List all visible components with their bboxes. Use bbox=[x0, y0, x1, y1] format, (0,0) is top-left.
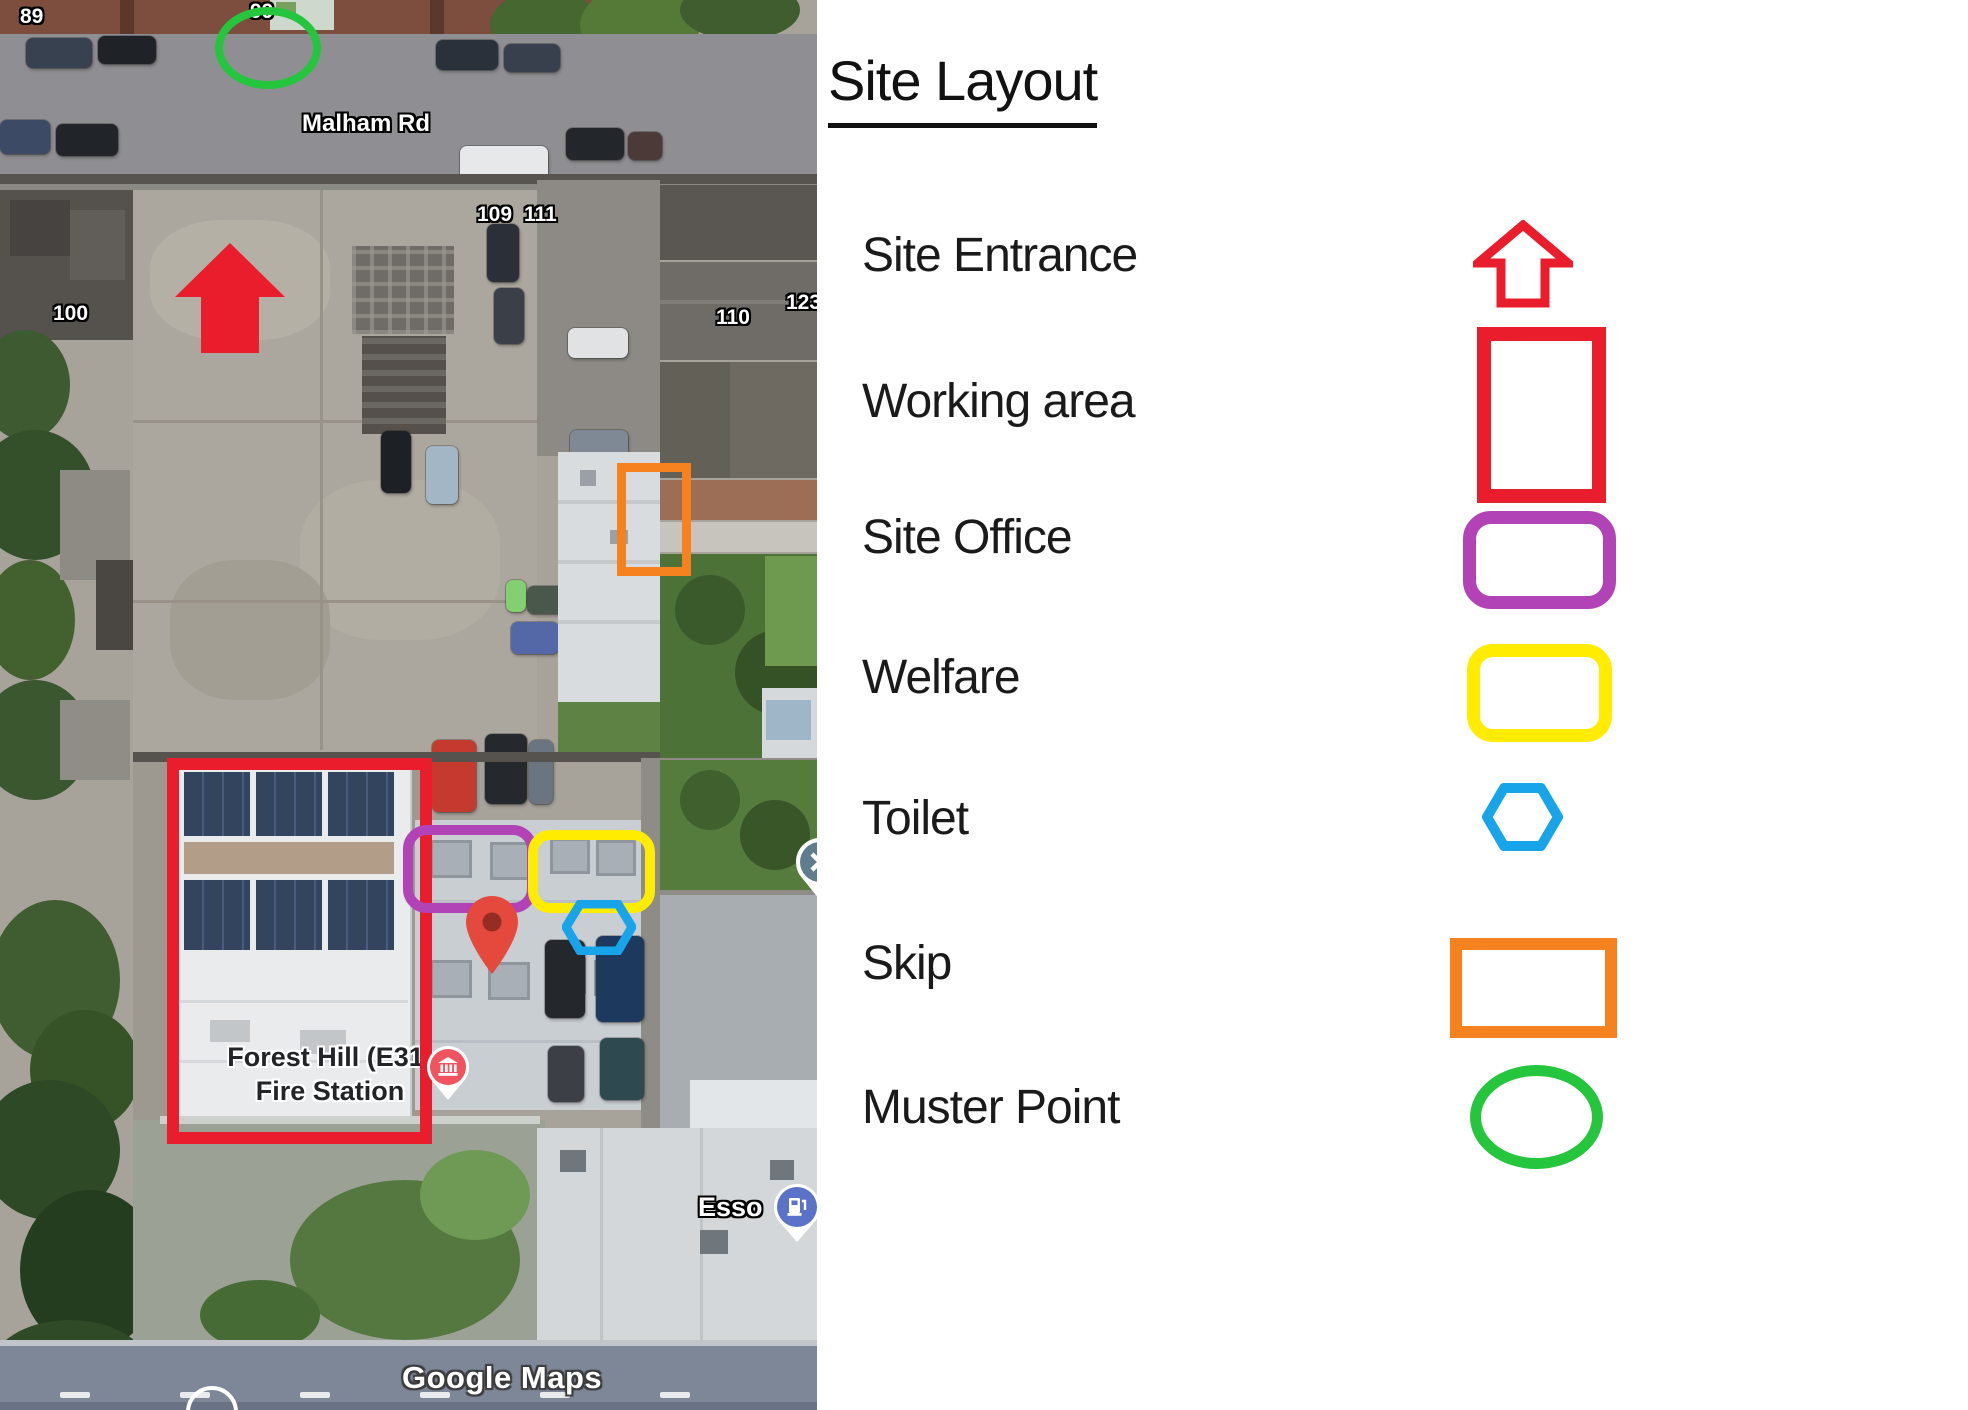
roof-vent bbox=[770, 1160, 794, 1180]
parked-car bbox=[381, 431, 411, 493]
parked-car bbox=[56, 124, 118, 156]
satellite-map: 89 99 Malham Rd 109 111 100 110 123 Fore… bbox=[0, 0, 817, 1410]
parked-car bbox=[98, 36, 156, 64]
house-number-110: 110 bbox=[716, 306, 750, 330]
parked-car bbox=[511, 622, 559, 654]
map-pin-body bbox=[466, 896, 518, 974]
map-pin-hole bbox=[483, 913, 502, 932]
hexagon-shape bbox=[566, 904, 632, 951]
hoist-structure bbox=[362, 336, 446, 434]
legend-icon-site-office-rounded-rect bbox=[1463, 511, 1616, 609]
civic-column bbox=[441, 1065, 444, 1073]
fuel-poi-icon bbox=[771, 1182, 817, 1244]
arrow-up-shape bbox=[175, 243, 285, 353]
fuel-pump-base bbox=[788, 1213, 802, 1216]
civic-column bbox=[445, 1065, 448, 1073]
poi-label-esso: Esso bbox=[698, 1192, 763, 1223]
site-layout-page: 89 99 Malham Rd 109 111 100 110 123 Fore… bbox=[0, 0, 1968, 1410]
skip-annotation bbox=[617, 463, 691, 576]
page-title: Site Layout bbox=[828, 48, 1097, 128]
house-number-100: 100 bbox=[53, 302, 88, 326]
legend-label-site-office: Site Office bbox=[862, 510, 1072, 565]
legend-label-muster-point: Muster Point bbox=[862, 1080, 1119, 1135]
parked-car bbox=[548, 1046, 584, 1102]
parked-car bbox=[426, 446, 458, 504]
kerb-line bbox=[0, 174, 817, 184]
working-area-annotation bbox=[167, 758, 432, 1144]
legend-label-toilet: Toilet bbox=[862, 791, 968, 846]
parked-car bbox=[566, 128, 624, 160]
house-number-123: 123 bbox=[786, 291, 817, 315]
rooftop-segment bbox=[120, 0, 134, 34]
fuel-pump-body bbox=[789, 1198, 800, 1213]
road-marking bbox=[60, 1392, 90, 1398]
parked-car bbox=[436, 40, 498, 70]
parked-car bbox=[26, 38, 92, 68]
parked-car bbox=[485, 734, 527, 804]
house-number-111: 111 bbox=[524, 203, 557, 227]
legend-icon-welfare-rounded-rect bbox=[1467, 644, 1612, 742]
house-number-109: 109 bbox=[477, 203, 512, 227]
legend-icon-muster-point-ellipse bbox=[1470, 1065, 1603, 1169]
lawn-light bbox=[765, 556, 817, 666]
yard-seam bbox=[133, 600, 537, 603]
rooftop-segment bbox=[430, 0, 444, 34]
roof-seam bbox=[600, 1128, 603, 1345]
tree-canopy bbox=[680, 770, 740, 830]
hexagon-outline-shape bbox=[1487, 788, 1558, 846]
parked-car-green bbox=[506, 580, 526, 612]
legend-label-working-area: Working area bbox=[862, 374, 1135, 429]
parked-car bbox=[628, 132, 662, 160]
building-roof bbox=[10, 200, 70, 256]
tree-canopy bbox=[0, 330, 70, 440]
map-pin-icon bbox=[466, 896, 518, 974]
roof-vent bbox=[560, 1150, 586, 1172]
legend-icon-toilet-hexagon bbox=[1482, 783, 1563, 851]
closed-place-poi-icon bbox=[792, 836, 817, 902]
yard-light-patch bbox=[300, 480, 500, 640]
arrow-up-outline-shape bbox=[1478, 225, 1568, 303]
toilet-hexagon-annotation bbox=[562, 900, 636, 955]
street-label-malham-rd: Malham Rd bbox=[302, 110, 430, 138]
legend-icon-site-entrance-arrow bbox=[1473, 220, 1573, 308]
vegetation-patch bbox=[420, 1150, 530, 1240]
legend-label-skip: Skip bbox=[862, 936, 951, 991]
yard-seam bbox=[133, 420, 537, 423]
road-marking bbox=[300, 1392, 330, 1398]
google-maps-watermark: Google Maps bbox=[402, 1360, 602, 1396]
building-roof bbox=[70, 210, 125, 280]
parked-car bbox=[0, 120, 50, 154]
legend-label-site-entrance: Site Entrance bbox=[862, 228, 1137, 283]
yard-seam bbox=[320, 190, 323, 750]
parked-car bbox=[504, 44, 560, 72]
muster-point-annotation bbox=[215, 7, 321, 89]
garden-shed-cover bbox=[766, 700, 811, 740]
road-marking bbox=[660, 1392, 690, 1398]
yard-dark-patch bbox=[170, 560, 330, 700]
legend-icon-working-area-rect bbox=[1477, 327, 1606, 503]
fire-station-poi-icon bbox=[424, 1044, 472, 1102]
scaffold-structure bbox=[352, 246, 454, 334]
civic-base bbox=[439, 1073, 458, 1076]
parked-van bbox=[600, 1038, 644, 1100]
parked-car bbox=[487, 224, 519, 282]
civic-column bbox=[454, 1065, 457, 1073]
ground-patch bbox=[60, 700, 130, 780]
parked-van-white bbox=[568, 328, 628, 358]
fuel-pump-window bbox=[792, 1201, 798, 1206]
parked-car-red bbox=[432, 740, 476, 812]
legend-panel: Site Layout Site Entrance Working area S… bbox=[817, 0, 1968, 1410]
legend-label-welfare: Welfare bbox=[862, 650, 1020, 705]
site-entrance-arrow-annotation bbox=[175, 243, 285, 353]
civic-column bbox=[450, 1065, 453, 1073]
parked-car bbox=[529, 740, 553, 804]
parked-car bbox=[494, 288, 524, 344]
roof-vent bbox=[580, 470, 596, 486]
garden-patch bbox=[558, 702, 660, 754]
house-roof bbox=[660, 185, 817, 260]
roof-vent bbox=[700, 1230, 728, 1254]
house-number-89: 89 bbox=[20, 5, 43, 29]
roof-seam bbox=[558, 620, 660, 624]
legend-icon-skip-rect bbox=[1450, 938, 1617, 1038]
tree-canopy bbox=[675, 575, 745, 645]
house-roof bbox=[730, 362, 817, 478]
shed-dark bbox=[96, 560, 134, 650]
poi-circle bbox=[430, 1049, 466, 1085]
road-strip bbox=[0, 1402, 817, 1410]
